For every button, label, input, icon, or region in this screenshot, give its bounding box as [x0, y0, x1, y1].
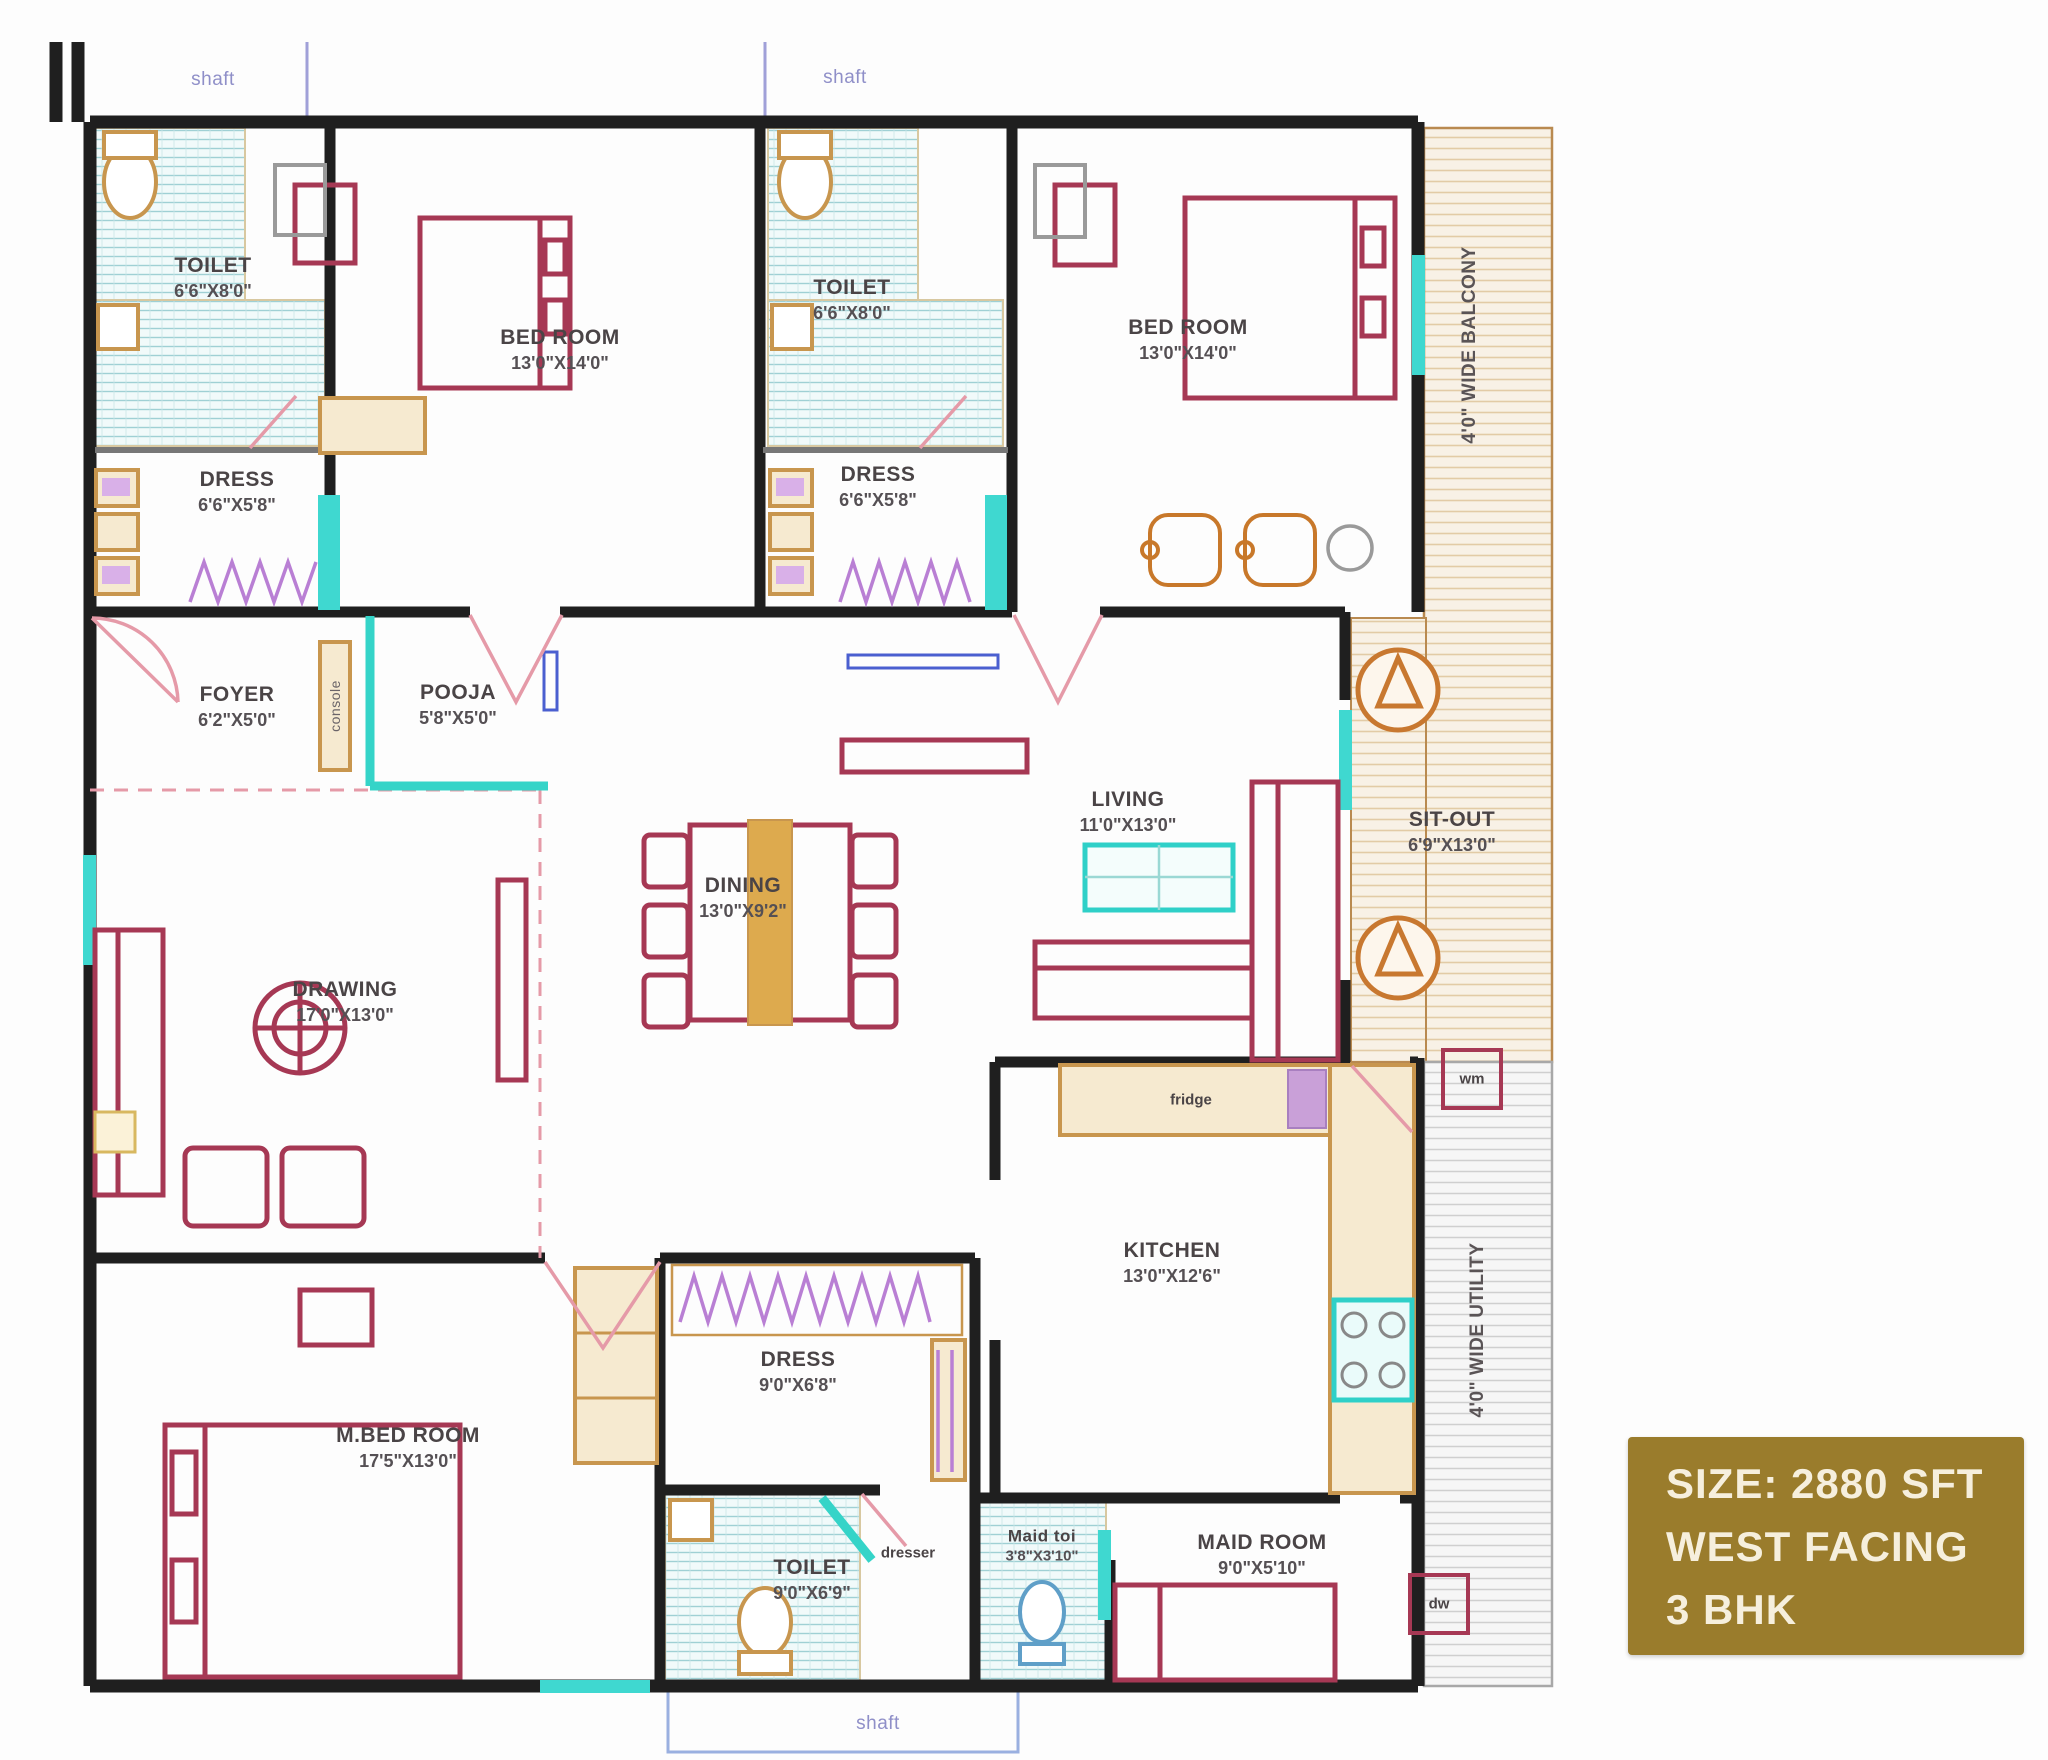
balcony-label: 4'0" WIDE BALCONY	[1459, 246, 1481, 443]
bhk-line: 3 BHK	[1666, 1578, 2024, 1641]
shaft-label-top-left: shaft	[191, 69, 235, 91]
facing-line: WEST FACING	[1666, 1515, 2024, 1578]
floorplan-page: TOILET 6'6"X8'0" BED ROOM 13'0"X14'0" TO…	[0, 0, 2048, 1760]
fridge-label: fridge	[1170, 1092, 1212, 1109]
utility-label: 4'0" WIDE UTILITY	[1467, 1242, 1489, 1417]
dresser-label: dresser	[881, 1545, 935, 1562]
size-line: SIZE: 2880 SFT	[1666, 1452, 2024, 1515]
console-label: console	[327, 680, 343, 732]
shaft-label-bottom: shaft	[856, 1713, 900, 1735]
dw-label: dw	[1429, 1596, 1450, 1613]
size-info-box: SIZE: 2880 SFT WEST FACING 3 BHK	[1628, 1437, 2024, 1655]
wm-label: wm	[1459, 1071, 1484, 1088]
shaft-label-top-right: shaft	[823, 67, 867, 89]
